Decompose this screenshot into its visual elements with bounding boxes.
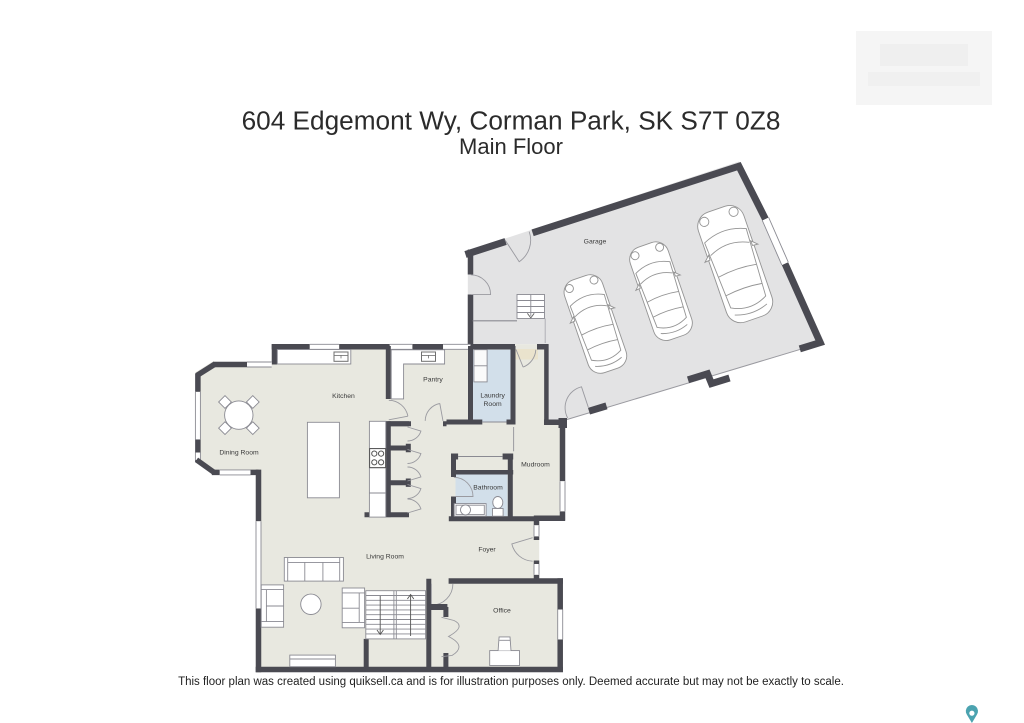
svg-text:Mudroom: Mudroom: [521, 462, 550, 469]
svg-text:Room: Room: [484, 401, 502, 408]
svg-text:Bathroom: Bathroom: [473, 485, 503, 492]
svg-text:604 Edgemont Wy, Corman Park,: 604 Edgemont Wy, Corman Park, SK S7T 0Z8: [242, 106, 781, 136]
svg-text:Foyer: Foyer: [478, 547, 496, 554]
svg-text:Dining Room: Dining Room: [219, 450, 259, 457]
svg-text:Garage: Garage: [584, 239, 607, 246]
svg-text:Living Room: Living Room: [366, 554, 404, 561]
svg-text:Main Floor: Main Floor: [459, 134, 563, 159]
svg-text:Office: Office: [493, 608, 511, 615]
svg-text:Laundry: Laundry: [480, 393, 505, 400]
svg-text:Kitchen: Kitchen: [332, 393, 355, 400]
svg-text:Pantry: Pantry: [423, 377, 443, 384]
svg-text:This floor plan was created us: This floor plan was created using quikse…: [178, 676, 844, 688]
